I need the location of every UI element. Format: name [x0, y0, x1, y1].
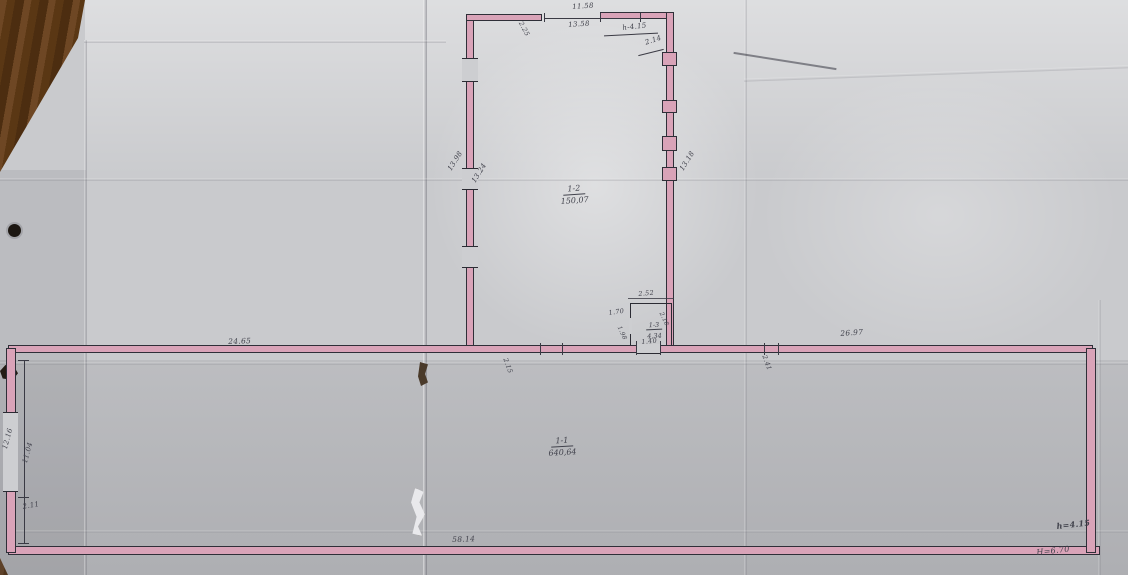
room-number: 1-2 — [562, 183, 586, 196]
tick-mark — [640, 13, 641, 22]
window-symbol — [462, 246, 478, 268]
window-symbol — [662, 136, 677, 151]
room-area: 4,34 — [638, 331, 670, 341]
dimension-line — [18, 497, 29, 498]
tick-mark — [540, 343, 541, 355]
room-label-small: 1-3 4,34 — [637, 311, 670, 341]
hall-top-wall — [8, 345, 1093, 353]
dim-top-width-outer: 13.58 — [568, 19, 590, 28]
window-symbol — [662, 167, 677, 181]
floor-plan-photo: 11.58 13.58 h-4.15 2.14 2.25 13.98 13.24… — [0, 0, 1128, 575]
window-symbol — [3, 412, 18, 492]
window-symbol — [662, 52, 677, 66]
dimension-line — [544, 18, 640, 19]
fold-crease-vertical — [423, 0, 427, 575]
fold-crease-horizontal — [84, 40, 446, 43]
paper-sheet — [0, 0, 1128, 575]
window-symbol — [662, 100, 677, 113]
tick-mark — [544, 13, 545, 22]
dimension-line — [18, 360, 29, 361]
tick-mark — [600, 13, 601, 22]
fold-crease-horizontal — [0, 362, 1128, 365]
fold-crease-vertical — [744, 0, 747, 575]
tick-mark — [636, 341, 637, 355]
dim-top-width-inner: 11.58 — [572, 1, 594, 10]
hall-bottom-wall — [8, 546, 1100, 555]
tick-mark — [562, 343, 563, 355]
dimension-line — [628, 298, 674, 299]
dim-hall-bottom: 58.14 — [452, 534, 475, 544]
dim-small-room-top: 2.52 — [638, 289, 654, 298]
dim-hall-top-left: 24.65 — [228, 336, 251, 346]
room-number: 1-3 — [646, 321, 663, 331]
room-number: 1-1 — [550, 435, 573, 447]
punch-hole — [8, 224, 21, 237]
dimension-line — [18, 543, 29, 544]
fold-crease-vertical — [1098, 300, 1101, 575]
fold-crease-vertical — [84, 40, 87, 575]
tick-mark — [764, 343, 765, 355]
upper-room-top-wall-left — [466, 14, 542, 21]
window-symbol — [462, 58, 478, 82]
tick-mark — [778, 343, 779, 355]
door-opening — [636, 344, 660, 354]
room-label-upper: 1-2 150,07 — [549, 174, 599, 206]
dim-hall-top-right: 26.97 — [840, 327, 864, 338]
room-label-hall: 1-1 640,64 — [535, 427, 588, 459]
tick-mark — [660, 341, 661, 355]
fold-crease-horizontal — [8, 530, 1128, 533]
